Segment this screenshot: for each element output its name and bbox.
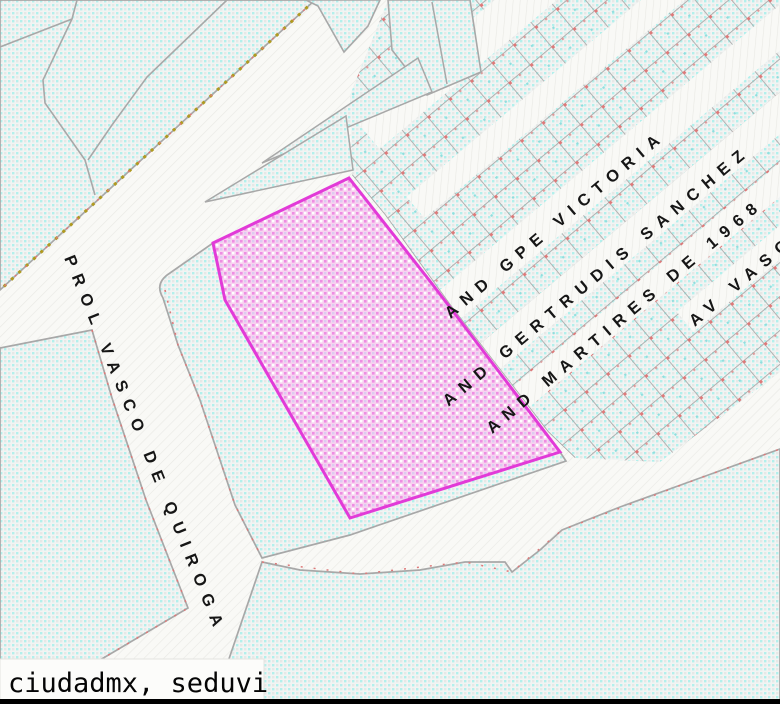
cadastral-map-canvas[interactable]: PROL VASCO DE QUIROGA AND GPE VICTORIA A… [0, 0, 780, 704]
attribution-box: ciudadmx, seduvi [0, 659, 268, 702]
map-viewport[interactable]: PROL VASCO DE QUIROGA AND GPE VICTORIA A… [0, 0, 780, 704]
attribution-text: ciudadmx, seduvi [8, 668, 268, 699]
map-bottom-border [0, 699, 780, 704]
